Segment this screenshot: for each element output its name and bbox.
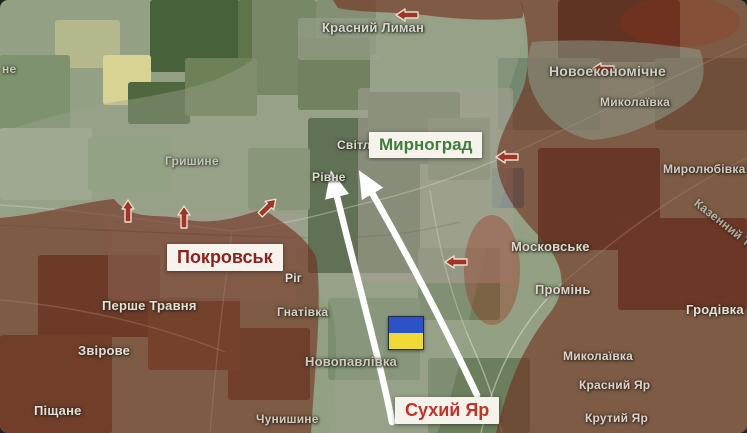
place-labels: Красний ЛиманНовоекономічнеМиколаївкаМир…	[0, 0, 747, 433]
place-label: Казенний Т.	[691, 196, 747, 251]
place-label: Чунишине	[256, 412, 319, 426]
place-label: Гнатівка	[277, 305, 328, 319]
place-label: Новоекономічне	[549, 63, 666, 79]
place-label: Перше Травня	[102, 298, 197, 313]
city-label-myrnohrad: Мирноград	[369, 132, 482, 158]
city-label-sukhyi-yar: Сухий Яр	[395, 397, 499, 424]
war-map[interactable]: Красний ЛиманНовоекономічнеМиколаївкаМир…	[0, 0, 747, 433]
place-label: Красний Лиман	[322, 20, 424, 35]
place-label: Миколаївка	[600, 95, 670, 109]
place-label: Миколаївка	[563, 349, 633, 363]
place-label: Звірове	[78, 343, 130, 358]
place-label: Крутий Яр	[585, 411, 648, 425]
place-label: Гришине	[165, 154, 219, 168]
place-label: Гродівка	[686, 302, 744, 317]
place-label: Миролюбівка	[663, 162, 745, 176]
city-label-pokrovsk: Покровськ	[167, 244, 283, 271]
place-label: Піщане	[34, 403, 82, 418]
place-label: Московське	[511, 239, 590, 254]
place-label: не	[2, 62, 16, 76]
place-label: Новопавлівка	[305, 354, 397, 369]
place-label: Ріг	[285, 271, 302, 285]
place-label: Промінь	[535, 282, 591, 297]
place-label: Рівне	[312, 170, 346, 184]
place-label: Красний Яр	[579, 378, 650, 392]
